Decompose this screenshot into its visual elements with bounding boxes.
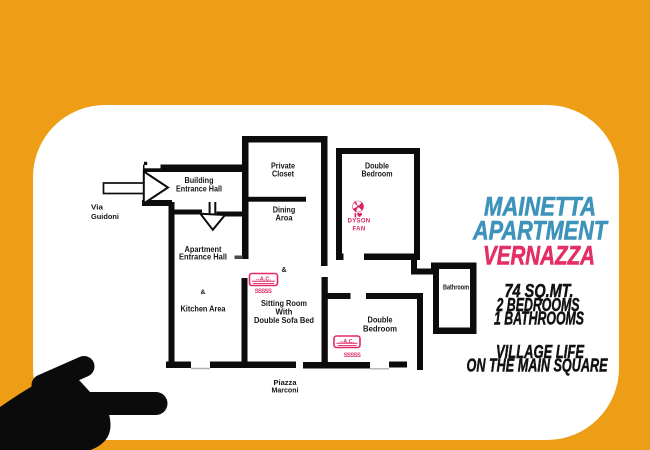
svg-text:Double Sofa Bed: Double Sofa Bed [254,316,314,325]
svg-text:Entrance Hall: Entrance Hall [176,184,222,193]
svg-text:Guidoni: Guidoni [91,212,119,221]
svg-text:Bathroom: Bathroom [443,285,469,292]
svg-text:Bedroom: Bedroom [362,170,393,179]
svg-text:SSSSS: SSSSS [255,288,273,295]
svg-text:ON THE MAIN SQUARE: ON THE MAIN SQUARE [467,355,608,376]
svg-text:SSSSS: SSSSS [344,352,362,359]
svg-text:Closet: Closet [272,169,294,178]
svg-text:Double: Double [368,316,394,325]
svg-text:&: & [281,267,286,274]
svg-text:Marconi: Marconi [272,386,299,395]
svg-text:&: & [201,289,206,296]
svg-text:Bedroom: Bedroom [363,325,397,334]
svg-text:1 BATHROOMS: 1 BATHROOMS [494,308,584,329]
svg-text:--A.C.: --A.C. [340,339,355,345]
svg-text:Aroa: Aroa [276,213,294,222]
svg-text:Via: Via [91,203,104,212]
svg-text:Entrance Hall: Entrance Hall [179,253,227,262]
svg-text:DYSON: DYSON [348,219,371,225]
svg-text:Kitchen Area: Kitchen Area [181,305,226,314]
svg-text:VERNAZZA: VERNAZZA [483,241,595,271]
svg-text:FAN: FAN [353,227,366,233]
